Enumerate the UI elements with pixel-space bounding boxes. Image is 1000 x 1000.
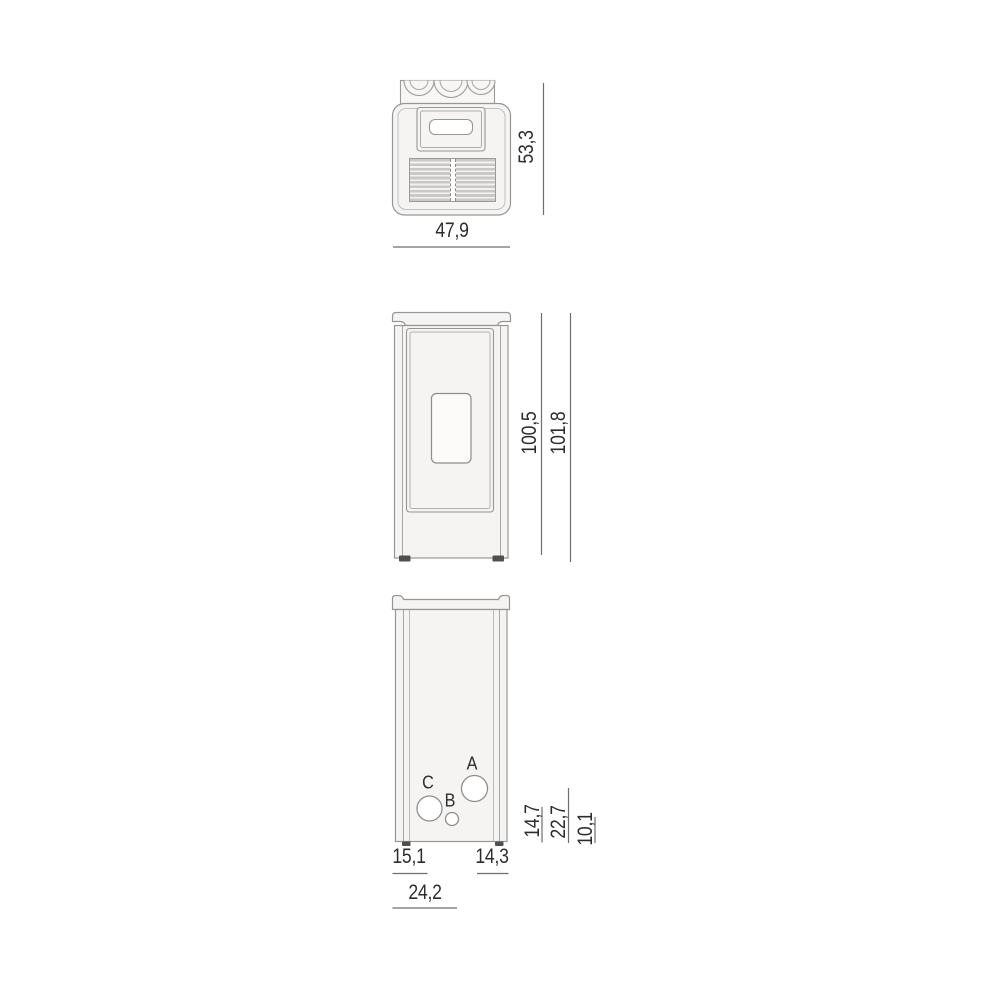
rear-offset-c-dim-label: 15,1: [392, 845, 425, 869]
front-view-lid: [393, 313, 511, 326]
top-width-dim-label: 47,9: [435, 219, 468, 243]
rear-height-c-dim-label: 14,7: [521, 804, 545, 837]
rear-port-c-label: C: [422, 773, 434, 794]
top-view-grille: [409, 158, 496, 202]
front-total-height-dim-label: 101,8: [547, 412, 571, 455]
front-view: [393, 313, 571, 563]
rear-port-c-circle: [417, 796, 442, 821]
top-view-grille-center-gap: [450, 159, 456, 201]
front-body-height-dim-label: 100,5: [518, 412, 542, 455]
dimension-drawing-page: 47,9 53,3 100,5 101,8 14,7 22,7 10,1 15,…: [0, 0, 1000, 1000]
rear-height-a-dim-label: 22,7: [547, 805, 571, 838]
front-view-left-foot: [399, 556, 411, 562]
top-view-display: [430, 120, 473, 135]
front-view-glass-window: [432, 394, 472, 464]
rear-view-lid: [393, 596, 510, 610]
rear-offset-b-dim-label: 24,2: [408, 881, 441, 905]
rear-port-b-label: B: [445, 791, 456, 812]
rear-port-b-circle: [446, 813, 459, 826]
front-view-right-foot: [493, 556, 505, 562]
rear-offset-a-dim-label: 14,3: [475, 845, 508, 869]
rear-height-b-dim-label: 10,1: [574, 812, 598, 845]
rear-port-a-label: A: [467, 754, 478, 775]
rear-port-a-circle: [462, 776, 488, 802]
top-depth-dim-label: 53,3: [515, 130, 539, 163]
